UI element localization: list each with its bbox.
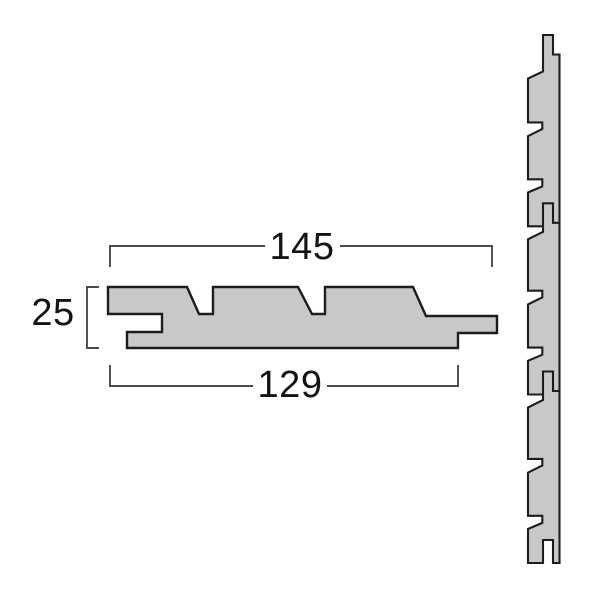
side-view-silhouette	[528, 35, 560, 563]
cross-section-view	[108, 287, 497, 348]
side-view-stacked-boards	[528, 35, 560, 563]
dimension-cover-width: 129	[110, 364, 458, 406]
dimension-overall-width-label: 145	[270, 226, 335, 268]
diagram-canvas: 145 25 129	[0, 0, 600, 600]
dimension-thickness: 25	[31, 287, 99, 348]
cladding-profile-diagram: 145 25 129	[0, 0, 600, 600]
dimension-thickness-line	[87, 287, 99, 348]
board-cross-section-shape	[108, 287, 497, 348]
dimension-overall-width: 145	[110, 226, 492, 268]
dimension-thickness-label: 25	[31, 292, 74, 334]
dimension-cover-width-label: 129	[258, 364, 323, 406]
